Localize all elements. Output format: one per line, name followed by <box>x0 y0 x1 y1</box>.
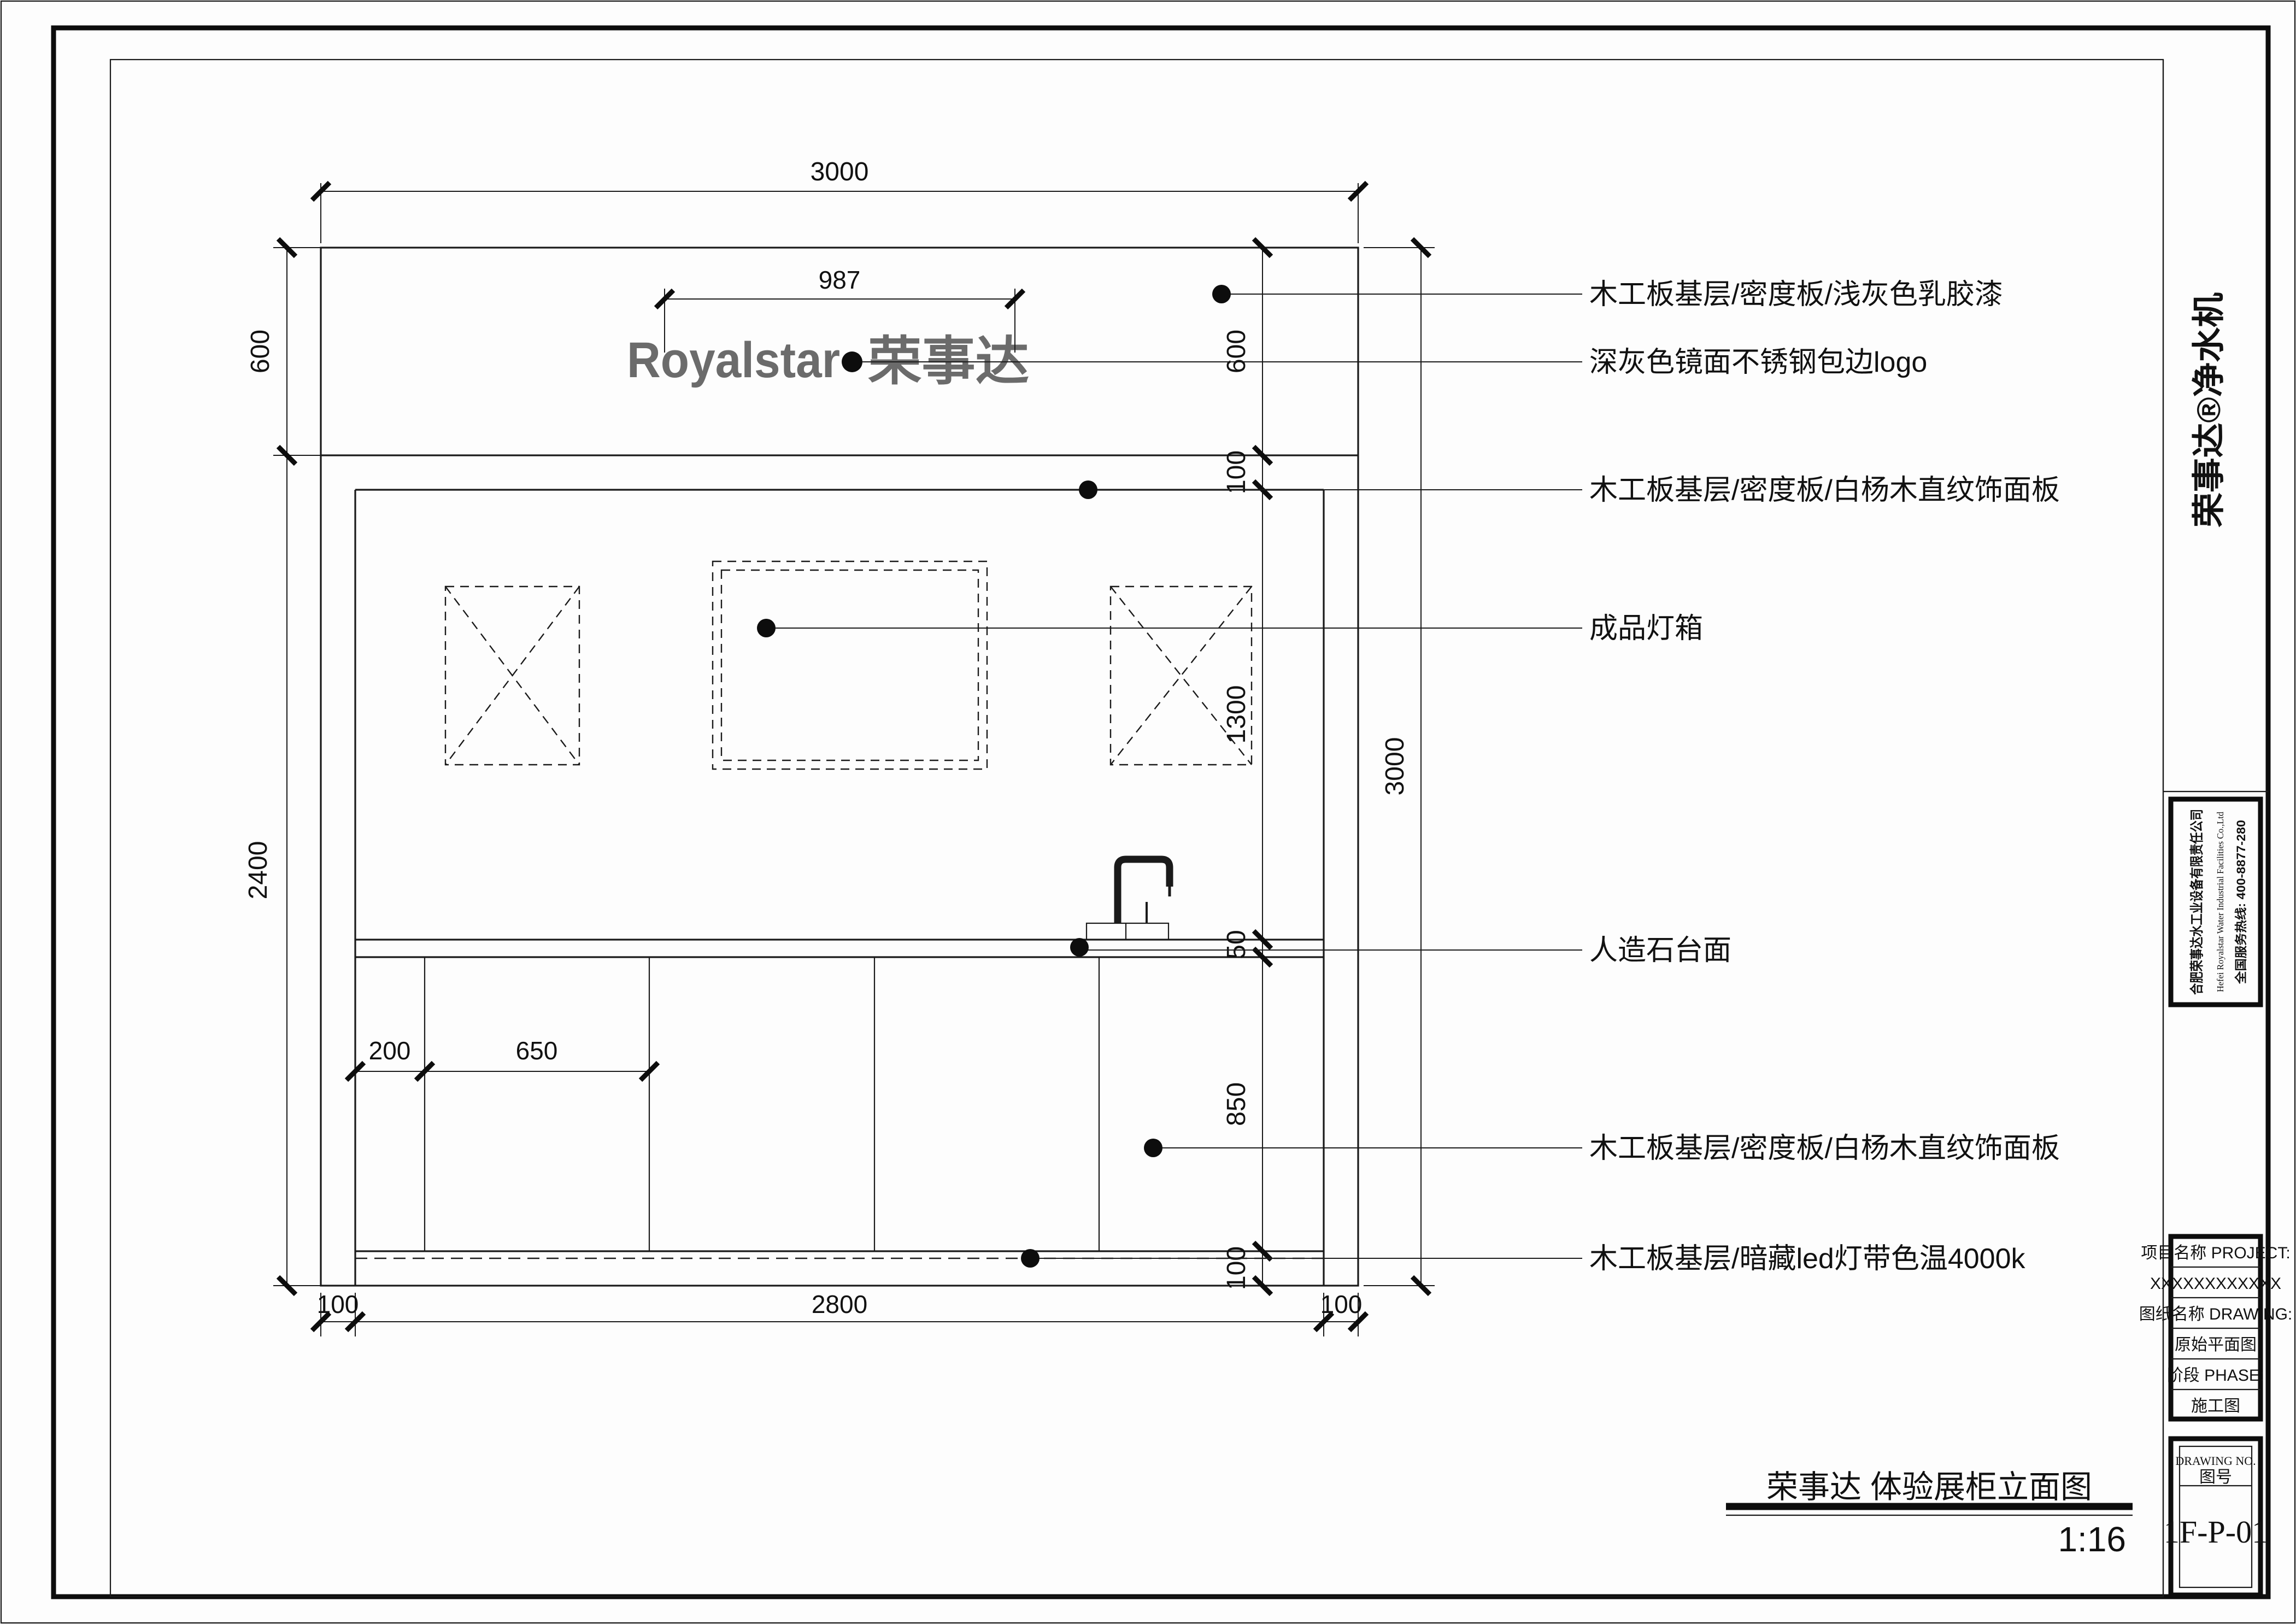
dim-label-2400: 2400 <box>244 841 273 900</box>
drawing-no-value: 1F-P-01 <box>2164 1514 2268 1550</box>
faucet-base <box>1087 923 1168 940</box>
dim-label-3000-right: 3000 <box>1381 737 1410 796</box>
leader-dot <box>1212 285 1231 303</box>
dim-right-stack: 600 100 1300 50 850 100 <box>1222 239 1271 1294</box>
leader-dot <box>842 351 862 372</box>
dim-label-200: 200 <box>369 1036 411 1065</box>
annotation-lightbox: 成品灯箱 <box>757 613 1703 644</box>
dim-label-850: 850 <box>1222 1082 1251 1126</box>
dim-label-3000-top: 3000 <box>811 157 869 186</box>
logo-text-en: Royalstar <box>627 332 840 388</box>
dim-label-100-gap: 100 <box>1222 450 1251 494</box>
cabinet-elevation: Royalstar 荣事达 <box>321 248 1358 1286</box>
annotation-text: 木工板基层/密度板/白杨木直纹饰面板 <box>1589 474 2060 506</box>
dim-right-overall: 3000 <box>1364 239 1435 1294</box>
leader-dot <box>1070 938 1089 957</box>
sheet-scale: 1:16 <box>2058 1520 2126 1559</box>
page-frame <box>1 1 2295 1623</box>
dim-label-2800: 2800 <box>812 1290 867 1318</box>
sidebar-brand-vertical: 荣事达®净水机 <box>2191 292 2227 527</box>
dim-bottom-row: 100 2800 100 <box>312 1290 1367 1336</box>
elevation-drawing-svg: Royalstar 荣事达 3000 987 <box>0 0 2296 1624</box>
annotation-text: 人造石台面 <box>1589 935 1731 966</box>
sheet-title-block: 荣事达 体验展柜立面图 1:16 <box>1726 1469 2133 1559</box>
dim-label-100-br: 100 <box>1320 1290 1363 1318</box>
lightbox-left <box>445 587 579 765</box>
dim-label-50: 50 <box>1222 930 1251 959</box>
field-phase-value: 施工图 <box>2191 1397 2240 1415</box>
sheet-border <box>54 28 2268 1597</box>
dim-top-overall: 3000 <box>312 157 1367 243</box>
faucet-gooseneck <box>1118 859 1170 923</box>
leader-dot <box>1021 1249 1040 1268</box>
leader-dot <box>757 619 776 637</box>
base-cabinet-dividers <box>425 957 1099 1251</box>
annotation-text: 成品灯箱 <box>1589 613 1703 644</box>
dim-label-100-toekick: 100 <box>1222 1246 1251 1290</box>
dim-label-600-right: 600 <box>1222 330 1251 373</box>
annotation-text: 木工板基层/密度板/浅灰色乳胶漆 <box>1589 279 2003 310</box>
company-name-cn: 合肥荣事达水工业设备有限责任公司 <box>2189 809 2205 995</box>
dim-label-650: 650 <box>516 1036 558 1065</box>
dim-left-column: 600 2400 <box>244 239 321 1294</box>
page-edge <box>1 1 2295 1623</box>
annotation-led-strip: 木工板基层/暗藏led灯带色温4000k <box>1021 1243 2026 1275</box>
dim-label-600-left: 600 <box>246 330 275 373</box>
drawing-no-label-cn: 图号 <box>2199 1468 2232 1486</box>
cabinet-outline <box>321 248 1358 1286</box>
leader-dot <box>1144 1139 1162 1157</box>
dim-label-100-bl: 100 <box>317 1290 359 1318</box>
company-hotline: 全国服务热线: 400-8877-280 <box>2234 820 2248 984</box>
annotation-text: 木工板基层/暗藏led灯带色温4000k <box>1589 1243 2026 1275</box>
field-drawing-label: 图纸名称 DRAWING: <box>2139 1305 2293 1323</box>
annotation-text: 木工板基层/密度板/白杨木直纹饰面板 <box>1589 1133 2060 1164</box>
field-drawing-value: 原始平面图 <box>2175 1336 2257 1354</box>
dim-base-sections: 200 650 <box>347 1036 658 1080</box>
annotation-poplar-panel-base: 木工板基层/密度板/白杨木直纹饰面板 <box>1144 1133 2060 1164</box>
lightbox-center <box>713 561 987 769</box>
field-phase-label: 阶段 PHASE: <box>2167 1367 2264 1385</box>
company-name-en: Hefei Royalstar Water Industrial Facilit… <box>2215 812 2225 992</box>
annotation-latex-paint: 木工板基层/密度板/浅灰色乳胶漆 <box>1212 279 2003 310</box>
field-project-label: 项目名称 PROJECT: <box>2141 1244 2290 1262</box>
faucet <box>1087 859 1170 940</box>
drawing-no-label-en: DRAWING NO. <box>2175 1454 2256 1468</box>
company-box: 合肥荣事达水工业设备有限责任公司 Hefei Royalstar Water I… <box>2171 799 2260 1005</box>
drawing-no-box: DRAWING NO. 图号 1F-P-01 <box>2164 1439 2268 1595</box>
dim-label-1300: 1300 <box>1222 685 1251 744</box>
field-project-value: XXXXXXXXXXXX <box>2150 1275 2281 1293</box>
annotation-text: 深灰色镜面不锈钢包边logo <box>1589 347 1927 378</box>
cad-sheet: Royalstar 荣事达 3000 987 <box>0 0 2296 1624</box>
sheet-title: 荣事达 体验展柜立面图 <box>1766 1469 2092 1505</box>
leader-dot <box>1079 480 1097 499</box>
dim-label-987: 987 <box>819 266 861 294</box>
